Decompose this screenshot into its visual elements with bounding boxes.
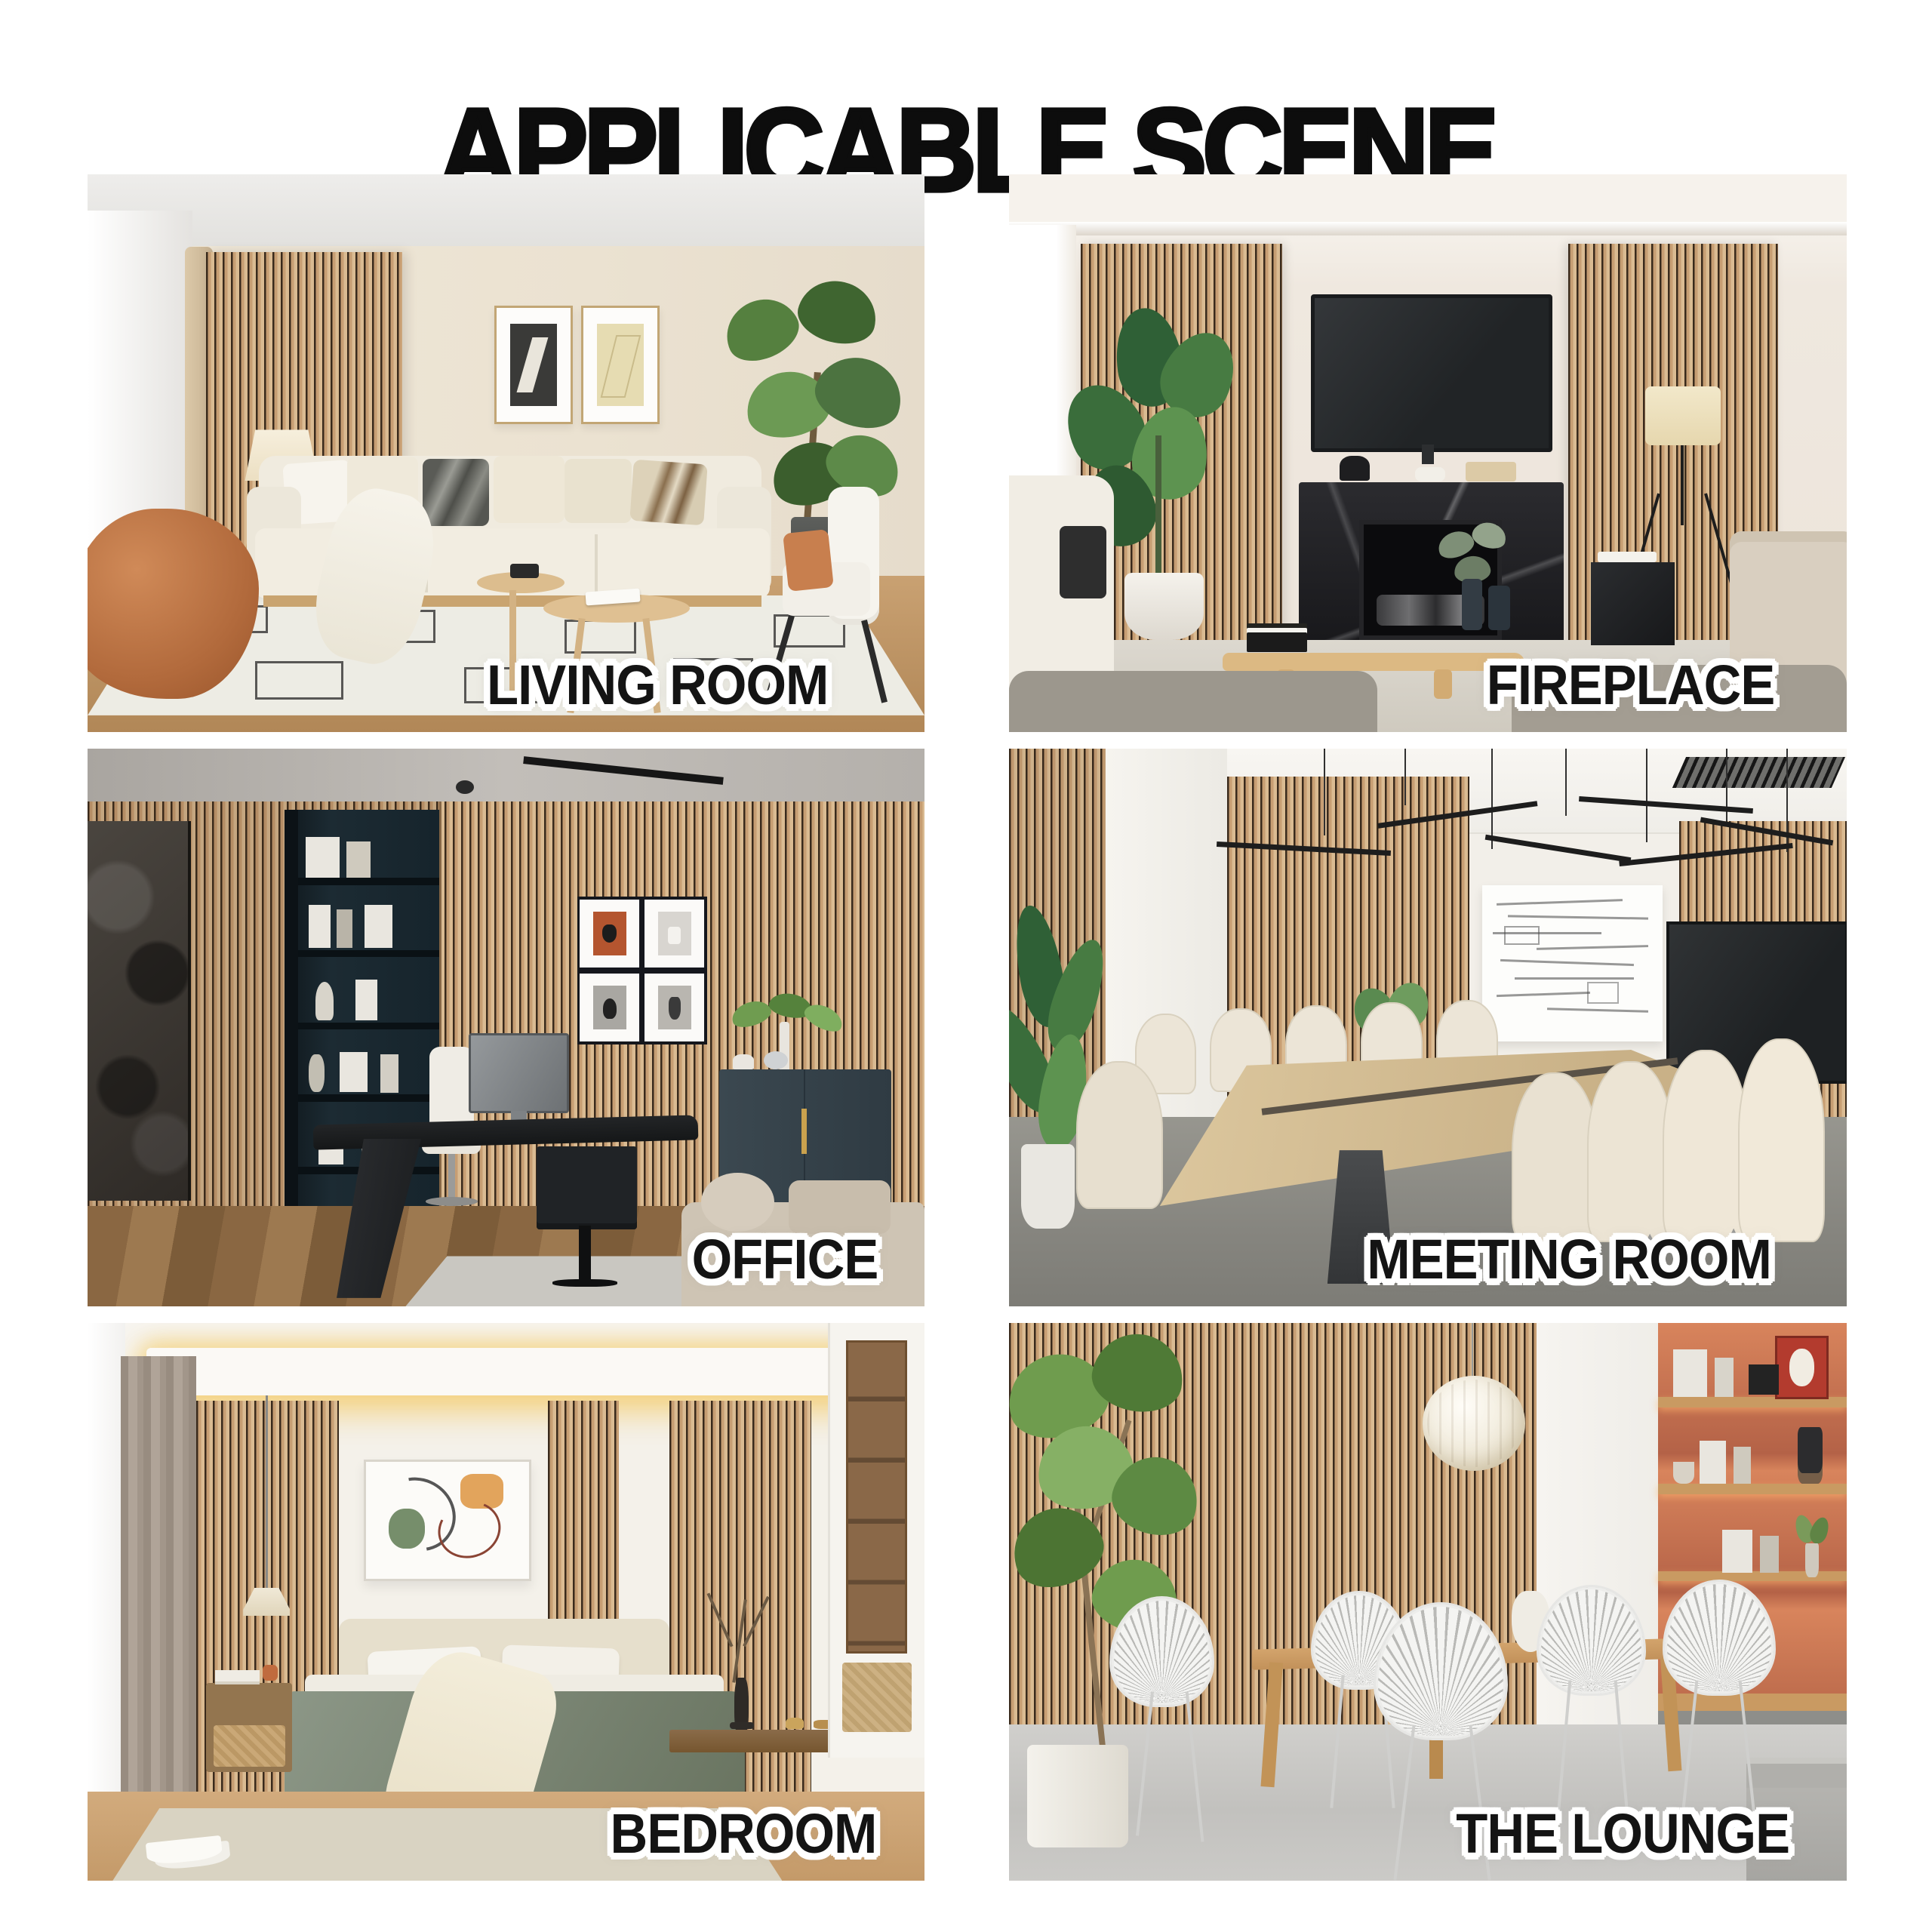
plant-pot-white — [1124, 573, 1203, 640]
meeting-chair-front — [1076, 1061, 1163, 1209]
framed-art-red — [1775, 1336, 1829, 1399]
tv-mount — [1422, 445, 1434, 464]
tree-pot — [1027, 1745, 1128, 1847]
pendant-lights — [1177, 749, 1847, 916]
wall-art-beige — [581, 306, 660, 424]
tv — [1311, 294, 1553, 453]
sheer-curtain — [88, 1323, 125, 1836]
fireplace-plant-sprigs — [1428, 523, 1528, 635]
monitor — [469, 1033, 570, 1113]
curtain — [121, 1356, 196, 1802]
pendant-cable — [1472, 1323, 1474, 1379]
sofa-pillow — [494, 456, 565, 523]
sofa-pillow-marble — [423, 459, 490, 526]
meeting-room-photo — [1009, 749, 1847, 1306]
stone-art-panel — [88, 821, 191, 1201]
meeting-chair-front — [1663, 1050, 1749, 1242]
framed-prints-grid — [577, 897, 707, 1044]
pendant-lamp-sphere — [1423, 1376, 1524, 1471]
meeting-chair-front — [1587, 1061, 1674, 1242]
meeting-chair-front — [1512, 1072, 1598, 1243]
ceiling — [88, 749, 924, 801]
ceiling-cove-glow — [146, 1348, 866, 1395]
armchair-left — [1009, 475, 1114, 688]
scene-panel-bedroom: BEDROOM — [88, 1323, 924, 1881]
living-room-photo — [88, 174, 924, 732]
camera-decor — [510, 564, 539, 578]
potted-plant — [1794, 1515, 1832, 1580]
scene-panel-living-room: LIVING ROOM — [88, 174, 924, 732]
wall-art-abstract — [364, 1460, 531, 1581]
scene-label-the-lounge: THE LOUNGE — [1456, 1801, 1789, 1866]
indoor-tree — [1009, 1334, 1244, 1847]
mantel-decor-vases — [1340, 456, 1370, 481]
branch-vase — [690, 1591, 790, 1736]
mantel-decor-bowl — [1415, 467, 1445, 481]
nightstand — [206, 1683, 291, 1772]
crown-molding — [1009, 222, 1847, 235]
pendant-lamp-cable — [266, 1395, 268, 1591]
scene-panel-fireplace: FIREPLACE — [1009, 174, 1847, 732]
office-photo — [88, 749, 924, 1306]
meeting-chair-front — [1738, 1038, 1825, 1242]
scene-panel-office: OFFICE — [88, 749, 924, 1306]
lantern — [1798, 1427, 1822, 1484]
sofa-pillow — [565, 459, 632, 523]
sofa-pillow-pattern — [629, 459, 707, 525]
scene-label-fireplace: FIREPLACE — [1486, 653, 1774, 717]
wood-slat-strip-center — [548, 1401, 619, 1646]
mantel-decor-box — [1466, 462, 1516, 482]
shelf-board — [1658, 1484, 1847, 1494]
scene-label-office: OFFICE — [691, 1227, 878, 1291]
black-box — [1749, 1364, 1779, 1395]
wardrobe — [828, 1323, 924, 1758]
fireplace-photo — [1009, 174, 1847, 732]
scene-panel-the-lounge: THE LOUNGE — [1009, 1323, 1847, 1881]
scene-label-living-room: LIVING ROOM — [487, 653, 828, 717]
scene-label-bedroom: BEDROOM — [610, 1801, 876, 1866]
scene-panel-meeting-room: MEETING ROOM — [1009, 749, 1847, 1306]
ceiling — [88, 174, 924, 248]
side-table-black — [1591, 562, 1675, 646]
scene-label-meeting-room: MEETING ROOM — [1367, 1227, 1771, 1291]
bedroom-photo — [88, 1323, 924, 1881]
sofa-back-left — [1009, 671, 1377, 732]
lounge-photo — [1009, 1323, 1847, 1881]
wall-art-dark — [494, 306, 573, 424]
desk — [313, 1109, 698, 1298]
scene-grid: LIVING ROOM — [88, 174, 1847, 1881]
bowl — [1673, 1462, 1694, 1484]
